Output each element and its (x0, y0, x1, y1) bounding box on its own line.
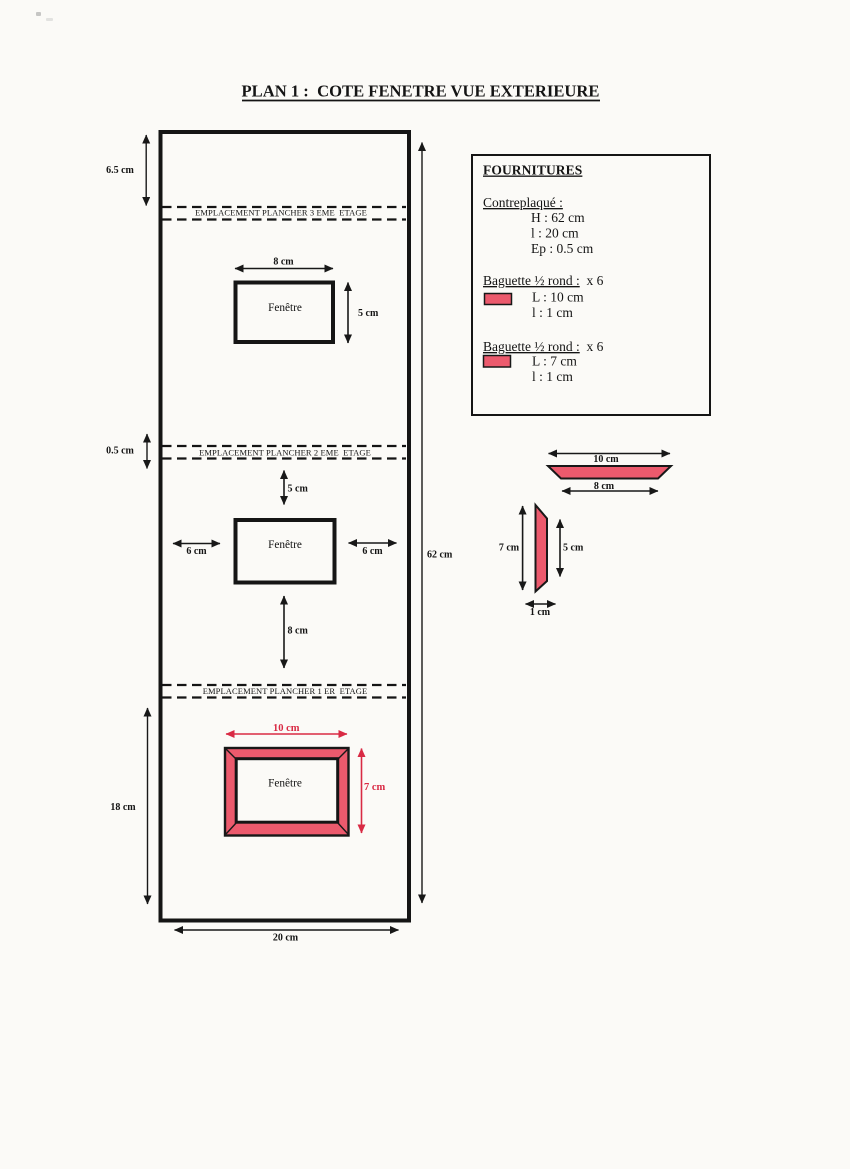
svg-text:PLAN 1 : COTE FENETRE VUE EXT: PLAN 1 : COTE FENETRE VUE EXTERIEURE (242, 82, 600, 101)
svg-text:EMPLACEMENT PLANCHER 2 EME E: EMPLACEMENT PLANCHER 2 EME ETAGE (199, 448, 371, 458)
svg-text:10 cm: 10 cm (273, 723, 300, 734)
svg-text:l : 1 cm: l : 1 cm (532, 305, 573, 320)
svg-text:Fenêtre: Fenêtre (268, 302, 302, 314)
svg-text:18 cm: 18 cm (110, 802, 136, 813)
svg-text:62 cm: 62 cm (427, 550, 453, 561)
svg-text:EMPLACEMENT PLANCHER 1 ER ET: EMPLACEMENT PLANCHER 1 ER ETAGE (203, 686, 368, 696)
svg-text:5 cm: 5 cm (563, 543, 584, 554)
svg-text:6.5 cm: 6.5 cm (106, 165, 134, 176)
svg-text:20 cm: 20 cm (273, 933, 299, 944)
svg-text:Fenêtre: Fenêtre (268, 778, 302, 790)
svg-text:6 cm: 6 cm (362, 546, 383, 557)
svg-text:Ep : 0.5 cm: Ep : 0.5 cm (531, 241, 594, 256)
svg-text:10 cm: 10 cm (593, 454, 619, 465)
svg-text:L : 10 cm: L : 10 cm (532, 290, 584, 305)
svg-text:Baguette ½ rond : x 6: Baguette ½ rond : x 6 (483, 273, 604, 288)
svg-text:7 cm: 7 cm (499, 543, 520, 554)
svg-text:FOURNITURES: FOURNITURES (483, 163, 582, 178)
svg-text:8 cm: 8 cm (273, 257, 294, 268)
svg-text:Baguette ½ rond : x 6: Baguette ½ rond : x 6 (483, 339, 604, 354)
svg-text:EMPLACEMENT PLANCHER 3 EME E: EMPLACEMENT PLANCHER 3 EME ETAGE (195, 208, 367, 218)
svg-text:L : 7 cm: L : 7 cm (532, 354, 577, 369)
svg-text:1 cm: 1 cm (530, 607, 551, 618)
svg-text:l : 1 cm: l : 1 cm (532, 369, 573, 384)
svg-text:6 cm: 6 cm (186, 546, 207, 557)
svg-text:8 cm: 8 cm (288, 626, 309, 637)
svg-text:5 cm: 5 cm (358, 308, 379, 319)
svg-text:Fenêtre: Fenêtre (268, 539, 302, 551)
svg-text:0.5 cm: 0.5 cm (106, 446, 134, 457)
svg-text:l : 20 cm: l : 20 cm (531, 226, 579, 241)
svg-text:8 cm: 8 cm (594, 481, 615, 492)
svg-text:Contreplaqué :: Contreplaqué : (483, 195, 563, 210)
svg-text:H : 62 cm: H : 62 cm (531, 210, 585, 225)
svg-text:5 cm: 5 cm (288, 484, 309, 495)
svg-text:7 cm: 7 cm (364, 782, 386, 793)
